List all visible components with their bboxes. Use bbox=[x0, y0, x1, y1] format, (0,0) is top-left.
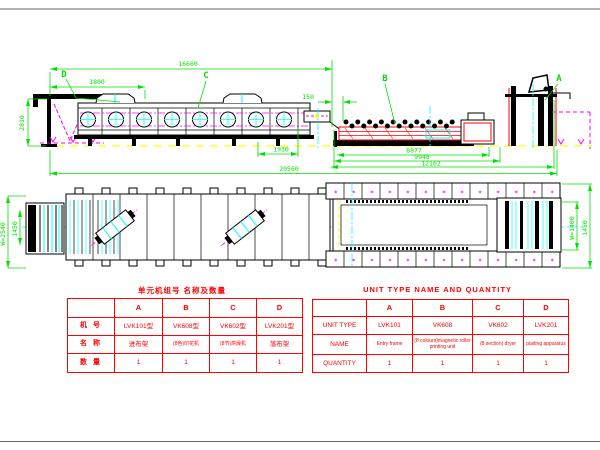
table-cell: Entry frame bbox=[367, 335, 413, 355]
dim-overall-top: 16660 bbox=[178, 60, 198, 68]
table-cell: (8色)印花机 bbox=[163, 336, 210, 354]
table-cell: B bbox=[413, 300, 473, 317]
col-header: A bbox=[387, 303, 392, 312]
dim-unit-gap: 150 bbox=[302, 93, 314, 101]
table-cell: VK602型 bbox=[210, 318, 257, 336]
col-header: B bbox=[440, 303, 445, 312]
col-header: B bbox=[183, 303, 188, 312]
table-cell: LVK201型 bbox=[257, 318, 303, 336]
table-cell: 1 bbox=[524, 355, 569, 373]
table-cell: (8 colours)magnetic roller printing unit bbox=[413, 335, 473, 355]
table-cell: C bbox=[210, 299, 257, 318]
table-cell: A bbox=[367, 300, 413, 317]
plaiting-frame-plan bbox=[26, 203, 64, 254]
col-header: C bbox=[495, 303, 500, 312]
row-label: 机 号 bbox=[68, 318, 115, 336]
table-cell: LVK101型 bbox=[115, 318, 163, 336]
view-label-b: B bbox=[382, 74, 388, 84]
table-cell: 1 bbox=[413, 355, 473, 373]
entry-frame-elevation bbox=[505, 75, 590, 149]
table-cell: 1 bbox=[367, 355, 413, 373]
table-cell bbox=[68, 299, 115, 318]
table-cell: 进布架 bbox=[115, 336, 163, 354]
plan-view: * * * * * * * * * * * * * * * * * * * * … bbox=[22, 183, 586, 267]
table-cell bbox=[313, 300, 367, 317]
en-table-title: UNIT TYPE NAME AND QUANTITY bbox=[312, 285, 563, 294]
dim-plan-left-outer: W=2540 bbox=[0, 222, 7, 246]
row-label: 名 称 bbox=[68, 336, 115, 354]
row-label: UNIT TYPE bbox=[313, 317, 367, 335]
table-cell: B bbox=[163, 299, 210, 318]
table-cell: A bbox=[115, 299, 163, 318]
row-label: QUANTITY bbox=[313, 355, 367, 373]
entry-frame-plan bbox=[497, 198, 561, 252]
table-cell: 1 bbox=[210, 354, 257, 373]
table-cell: 1 bbox=[473, 355, 524, 373]
dim-right-group: 12162 bbox=[421, 160, 441, 168]
dim-plan-right-inner: W=1400 bbox=[568, 216, 576, 240]
table-cell: VK608 bbox=[413, 317, 473, 335]
table-cell: VK608型 bbox=[163, 318, 210, 336]
view-label-c: C bbox=[203, 71, 208, 81]
dim-exit-length: 1930 bbox=[273, 146, 289, 154]
drawing-sheet: * * * * * * * * * * * * * * * * * * * * … bbox=[0, 0, 600, 450]
table-cell: C bbox=[473, 300, 524, 317]
row-label: 数 量 bbox=[68, 354, 115, 373]
dryer-plan bbox=[66, 188, 330, 266]
elevation-view bbox=[33, 75, 590, 150]
col-header: D bbox=[543, 303, 548, 312]
col-header: C bbox=[230, 303, 235, 312]
table-cell: D bbox=[257, 299, 303, 318]
technical-drawing: * * * * * * * * * * * * * * * * * * * * … bbox=[0, 0, 600, 450]
col-header: A bbox=[136, 303, 141, 312]
dim-machine-height: 2810 bbox=[18, 115, 26, 131]
dim-plan-left-inner: 1450 bbox=[11, 221, 19, 237]
table-cell: D bbox=[524, 300, 569, 317]
cn-table-title: 单元机组号 名称及数量 bbox=[67, 285, 297, 296]
dim-plan-right-outer: 1450 bbox=[581, 220, 589, 236]
leader-b bbox=[385, 84, 395, 124]
table-cell: VK602 bbox=[473, 317, 524, 335]
row-label: NAME bbox=[313, 335, 367, 355]
view-label-a: A bbox=[556, 74, 562, 84]
dryer-elevation bbox=[74, 94, 314, 146]
table-cell: 1 bbox=[257, 354, 303, 373]
table-cell: (8节)烘燥机 bbox=[210, 336, 257, 354]
cn-table: A B C D 机 号 LVK101型 VK608型 VK602型 LVK201… bbox=[67, 298, 303, 373]
table-cell: plaiting apparatus bbox=[524, 335, 569, 355]
en-table: A B C D UNIT TYPE LVK101 VK608 VK602 LVK… bbox=[312, 299, 569, 373]
table-cell: (8 section) dryer bbox=[473, 335, 524, 355]
dim-entry-offset: 1800 bbox=[89, 78, 105, 86]
table-cell: 1 bbox=[115, 354, 163, 373]
table-cell: LVK101 bbox=[367, 317, 413, 335]
col-header: D bbox=[277, 303, 282, 312]
top-tabs bbox=[75, 188, 326, 194]
table-cell: LVK201 bbox=[524, 317, 569, 335]
bottom-tabs bbox=[75, 260, 326, 266]
view-label-d: D bbox=[61, 70, 67, 80]
table-cell: 1 bbox=[163, 354, 210, 373]
table-cell: 落布架 bbox=[257, 336, 303, 354]
roof-vent bbox=[96, 94, 262, 103]
dim-overall-bottom: 20560 bbox=[279, 165, 299, 173]
printing-unit-elevation bbox=[333, 106, 494, 148]
